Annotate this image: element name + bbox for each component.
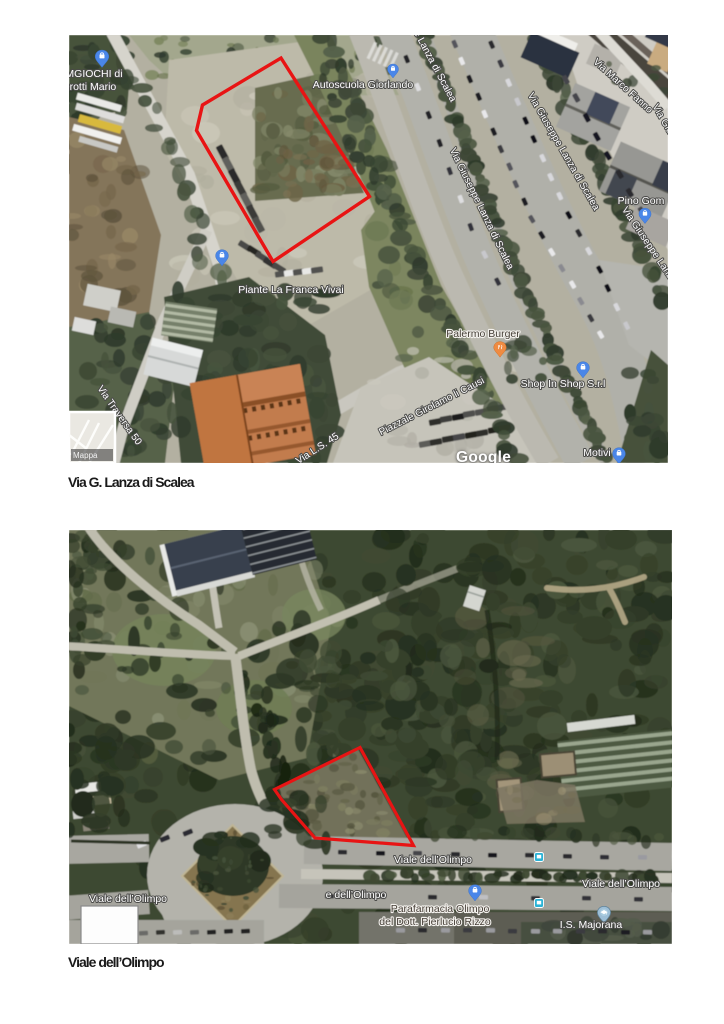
svg-text:Piante La Franca Vivai: Piante La Franca Vivai <box>238 284 343 296</box>
svg-text:Parafarmacia Olimpo: Parafarmacia Olimpo <box>391 903 490 915</box>
svg-text:Google: Google <box>456 449 511 463</box>
svg-text:Viale dell’Olimpo: Viale dell’Olimpo <box>89 893 167 905</box>
svg-text:e dell’Olimpo: e dell’Olimpo <box>326 889 387 901</box>
svg-text:Pino Gom: Pino Gom <box>618 195 665 207</box>
svg-text:Viale dell’Olimpo: Viale dell’Olimpo <box>394 854 472 866</box>
svg-text:Motivi: Motivi <box>583 447 610 459</box>
svg-text:Palermo Burger: Palermo Burger <box>446 328 520 340</box>
svg-text:I.S. Majorana: I.S. Majorana <box>560 919 623 931</box>
svg-text:MGIOCHI di: MGIOCHI di <box>69 68 123 80</box>
svg-text:Shop In Shop S.r.l: Shop In Shop S.r.l <box>521 378 606 390</box>
svg-text:Viale dell’Olimpo: Viale dell’Olimpo <box>582 878 660 890</box>
svg-text:del Dott. Pierlucio Rizzo: del Dott. Pierlucio Rizzo <box>379 916 491 928</box>
svg-text:Mappa: Mappa <box>73 451 98 460</box>
svg-text:erotti Mario: erotti Mario <box>69 81 116 93</box>
svg-text:Autoscuola Giorlando: Autoscuola Giorlando <box>313 79 414 91</box>
